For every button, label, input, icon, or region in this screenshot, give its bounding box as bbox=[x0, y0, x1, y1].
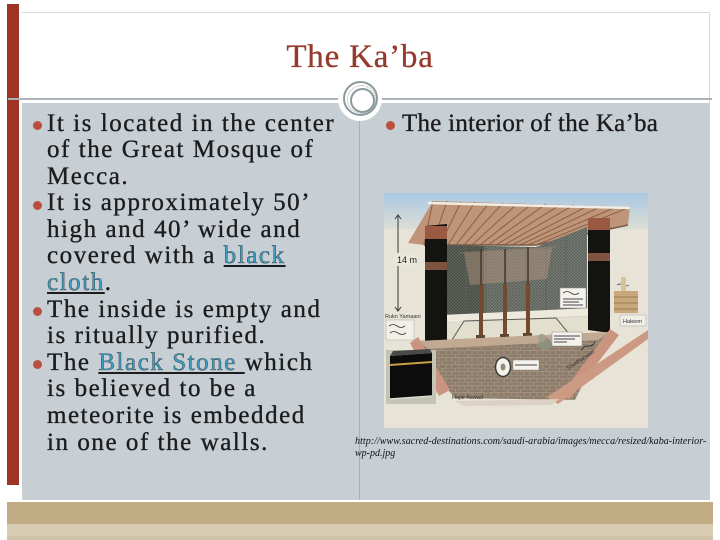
svg-text:Rukn Yamaani: Rukn Yamaani bbox=[385, 314, 421, 320]
svg-text:Haleem: Haleem bbox=[623, 319, 642, 325]
svg-text:14 m: 14 m bbox=[397, 255, 417, 265]
svg-text:Hajar Aswad: Hajar Aswad bbox=[452, 395, 483, 401]
